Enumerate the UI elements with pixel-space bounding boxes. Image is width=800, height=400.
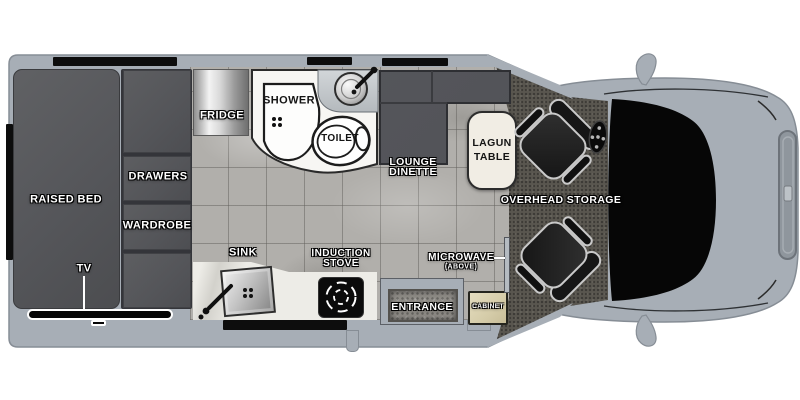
kitchen-faucet-base: [203, 308, 210, 315]
kitchen-faucet-base2: [199, 315, 204, 320]
fridge-label: FRIDGE: [200, 111, 244, 122]
sink-label: SINK: [229, 248, 257, 259]
fixtures-layer: [0, 0, 800, 400]
microwave-label-1: MICROWAVE: [428, 253, 494, 263]
tv-label: TV: [77, 264, 92, 275]
drawers-label: DRAWERS: [128, 172, 187, 183]
overhead-storage-label: OVERHEAD STORAGE: [501, 195, 622, 206]
wardrobe-label: WARDROBE: [123, 221, 192, 232]
rv-floorplan: RAISED BED DRAWERS WARDROBE TV FRIDGE SH…: [0, 0, 800, 400]
vanity-bowl: [335, 73, 367, 105]
toilet-label: TOILET: [321, 134, 359, 144]
vanity-faucet-base: [371, 67, 378, 74]
kitchen-faucet-icon: [209, 286, 231, 308]
lagun-table-label-1: LAGUN: [472, 138, 511, 149]
microwave-label-2: (ABOVE): [445, 264, 477, 271]
entrance-label: ENTRANCE: [391, 302, 453, 313]
burner-ring-outer: [327, 283, 356, 312]
induction-stove-label-2: STOVE: [323, 259, 359, 269]
raised-bed-label: RAISED BED: [30, 195, 102, 206]
cabinet-label: CABINET: [472, 304, 504, 311]
burner-ring-inner: [334, 290, 348, 304]
lagun-table-label-2: TABLE: [474, 152, 510, 163]
shower-label: SHOWER: [263, 96, 315, 107]
vanity-drain: [352, 90, 357, 95]
steering-wheel: [587, 120, 608, 154]
lounge-dinette-label-2: DINETTE: [389, 167, 437, 178]
shower-drain-icon: [272, 117, 276, 121]
